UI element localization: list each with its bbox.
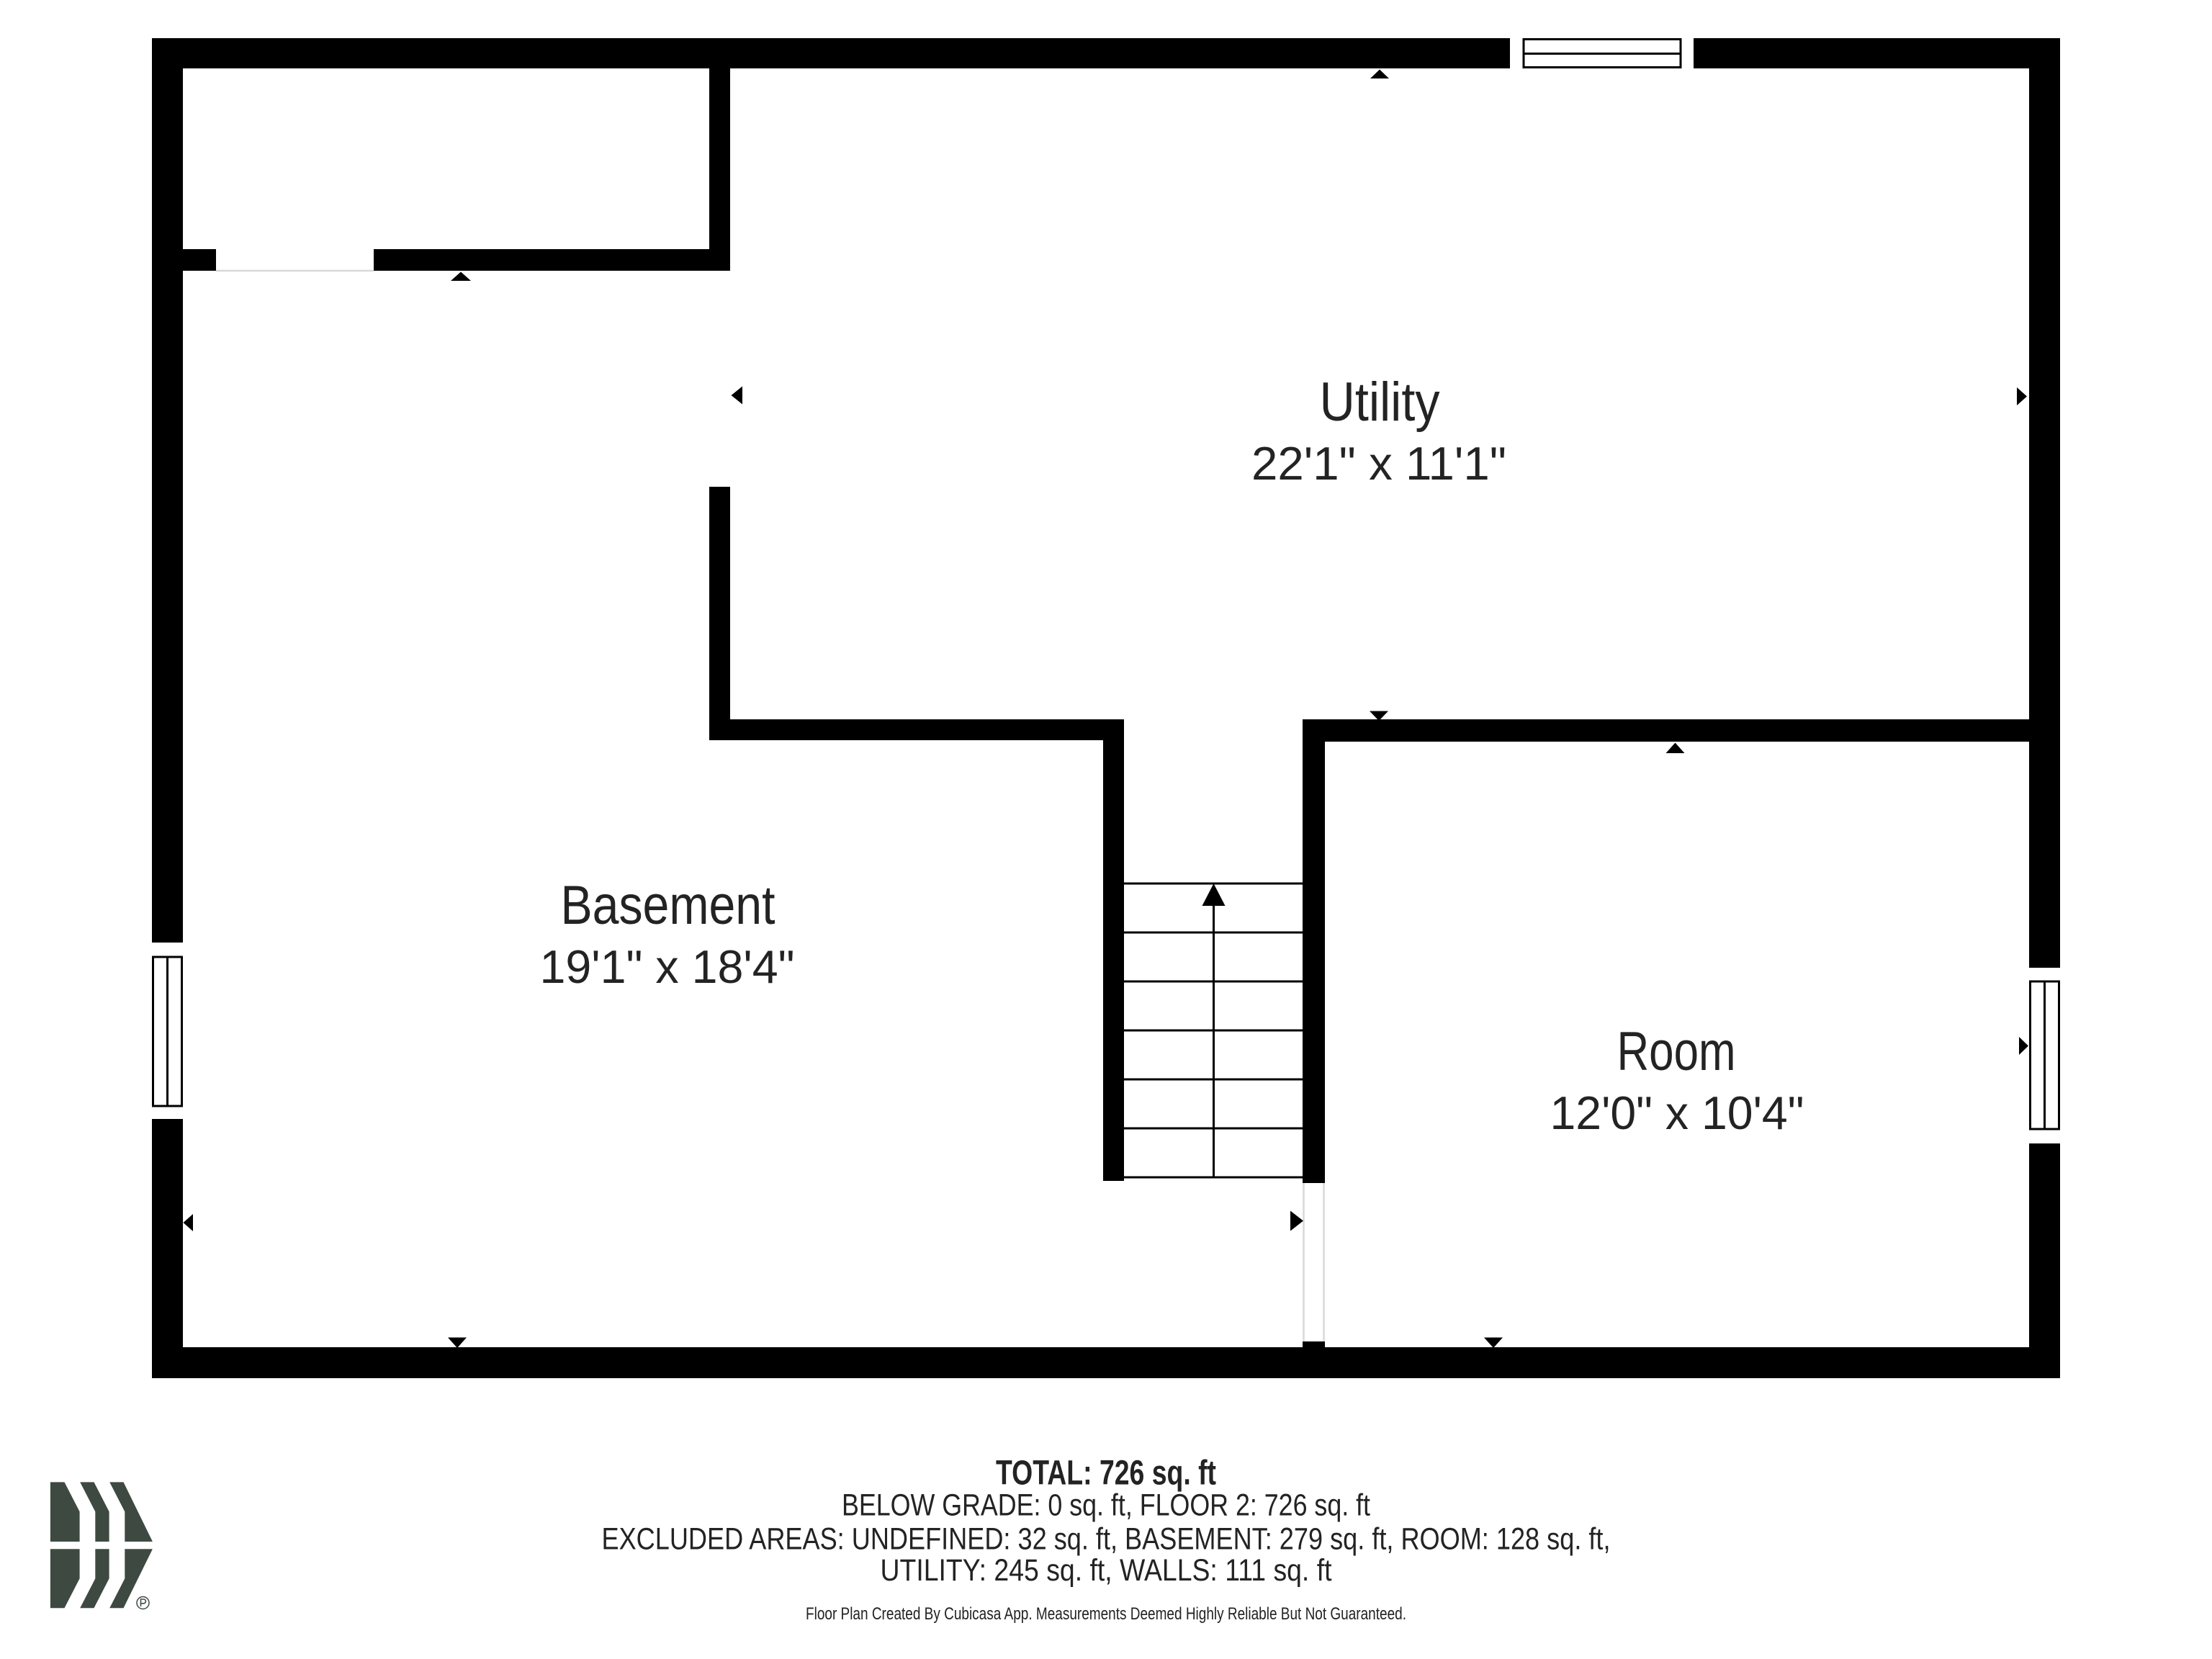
svg-text:EXCLUDED AREAS: UNDEFINED: 32: EXCLUDED AREAS: UNDEFINED: 32 sq. ft, BA… — [602, 1521, 1611, 1556]
svg-text:Floor Plan Created By Cubicasa: Floor Plan Created By Cubicasa App. Meas… — [806, 1604, 1406, 1624]
svg-text:UTILITY: 245 sq. ft, WALLS: 11: UTILITY: 245 sq. ft, WALLS: 111 sq. ft — [881, 1553, 1332, 1588]
svg-text:12'0" x 10'4": 12'0" x 10'4" — [1550, 1087, 1804, 1139]
svg-text:BELOW GRADE: 0 sq. ft, FLOOR 2: BELOW GRADE: 0 sq. ft, FLOOR 2: 726 sq. … — [842, 1488, 1370, 1523]
svg-text:Basement: Basement — [561, 875, 775, 936]
svg-text:19'1" x 18'4": 19'1" x 18'4" — [540, 940, 795, 993]
svg-text:22'1" x 11'1": 22'1" x 11'1" — [1251, 437, 1506, 490]
svg-text:Room: Room — [1617, 1021, 1736, 1082]
svg-text:Utility: Utility — [1320, 372, 1440, 433]
svg-text:TOTAL: 726 sq. ft: TOTAL: 726 sq. ft — [996, 1455, 1216, 1493]
